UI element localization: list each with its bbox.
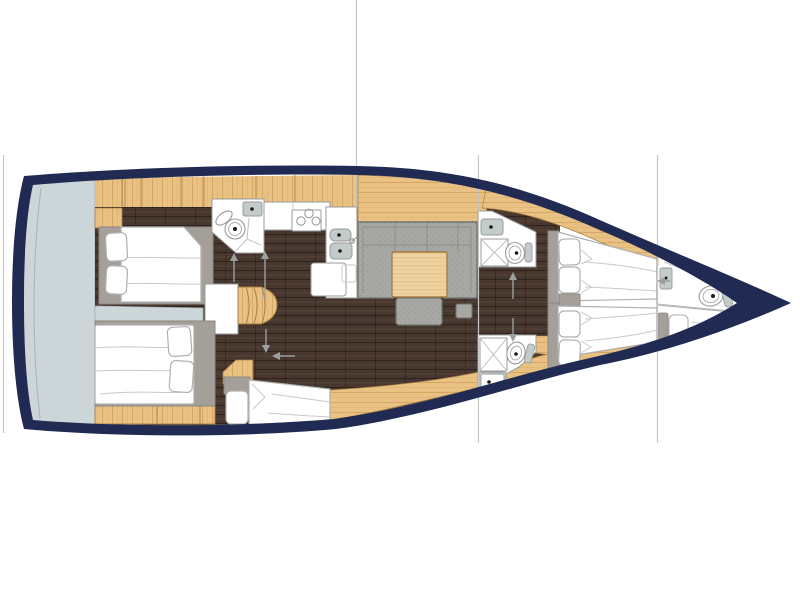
bench-seat (396, 298, 442, 325)
pillow (167, 326, 192, 357)
toilet-drain-dot (515, 251, 519, 255)
double-bed (121, 227, 201, 302)
pillow (105, 232, 127, 261)
stern-platform (18, 175, 95, 430)
salon-table (392, 252, 447, 297)
stool (456, 304, 472, 318)
pillow (105, 265, 127, 294)
yacht-floorplan-page (0, 0, 800, 600)
nightstand (548, 303, 559, 375)
nightstand (548, 231, 559, 303)
yacht-floorplan-diagram (0, 0, 800, 600)
cistern (525, 243, 532, 262)
sink-drain-dot (489, 225, 493, 229)
galley-island (311, 263, 346, 296)
stove-icon (292, 209, 321, 231)
sink-drain-dot (487, 380, 491, 384)
cockpit-wedge (95, 306, 203, 323)
toilet-drain-dot (233, 227, 237, 231)
stern-deck (18, 175, 95, 430)
toilet-drain-dot (711, 294, 715, 298)
corner-cabinet (95, 208, 122, 228)
aft-cabin-starboard (95, 321, 215, 406)
toilet-drain-dot (514, 352, 518, 356)
hull-interior (0, 150, 800, 450)
pillow (559, 311, 580, 337)
sink-drain-dot (250, 207, 254, 211)
pillow (559, 267, 580, 293)
aft-drawer-band (95, 405, 215, 424)
pillow (169, 360, 194, 393)
aft-cabin-port (99, 227, 213, 304)
pillow (226, 391, 248, 424)
pillow (559, 239, 581, 266)
